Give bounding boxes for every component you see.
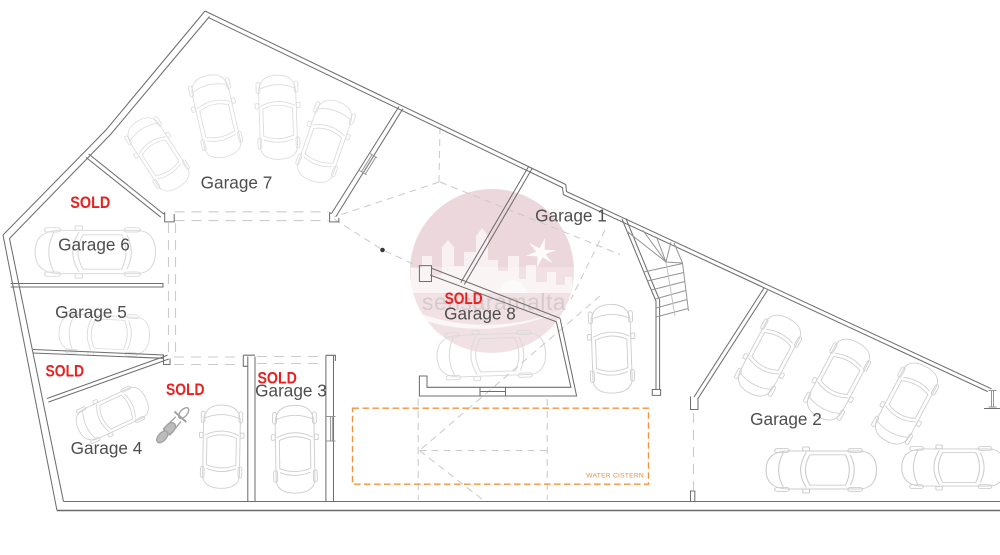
svg-text:Garage 5: Garage 5: [55, 302, 127, 322]
svg-text:WATER CISTERN: WATER CISTERN: [586, 473, 644, 480]
svg-text:SOLD: SOLD: [257, 370, 297, 388]
svg-text:SOLD: SOLD: [70, 194, 110, 212]
svg-text:SOLD: SOLD: [445, 290, 483, 308]
svg-text:Garage 7: Garage 7: [201, 172, 273, 192]
svg-text:Garage 6: Garage 6: [58, 234, 130, 254]
svg-text:Garage 1: Garage 1: [535, 206, 607, 226]
svg-text:SOLD: SOLD: [46, 362, 85, 380]
svg-text:Garage 4: Garage 4: [71, 438, 143, 458]
svg-text:SOLD: SOLD: [166, 381, 205, 399]
svg-text:Garage 2: Garage 2: [750, 409, 822, 429]
